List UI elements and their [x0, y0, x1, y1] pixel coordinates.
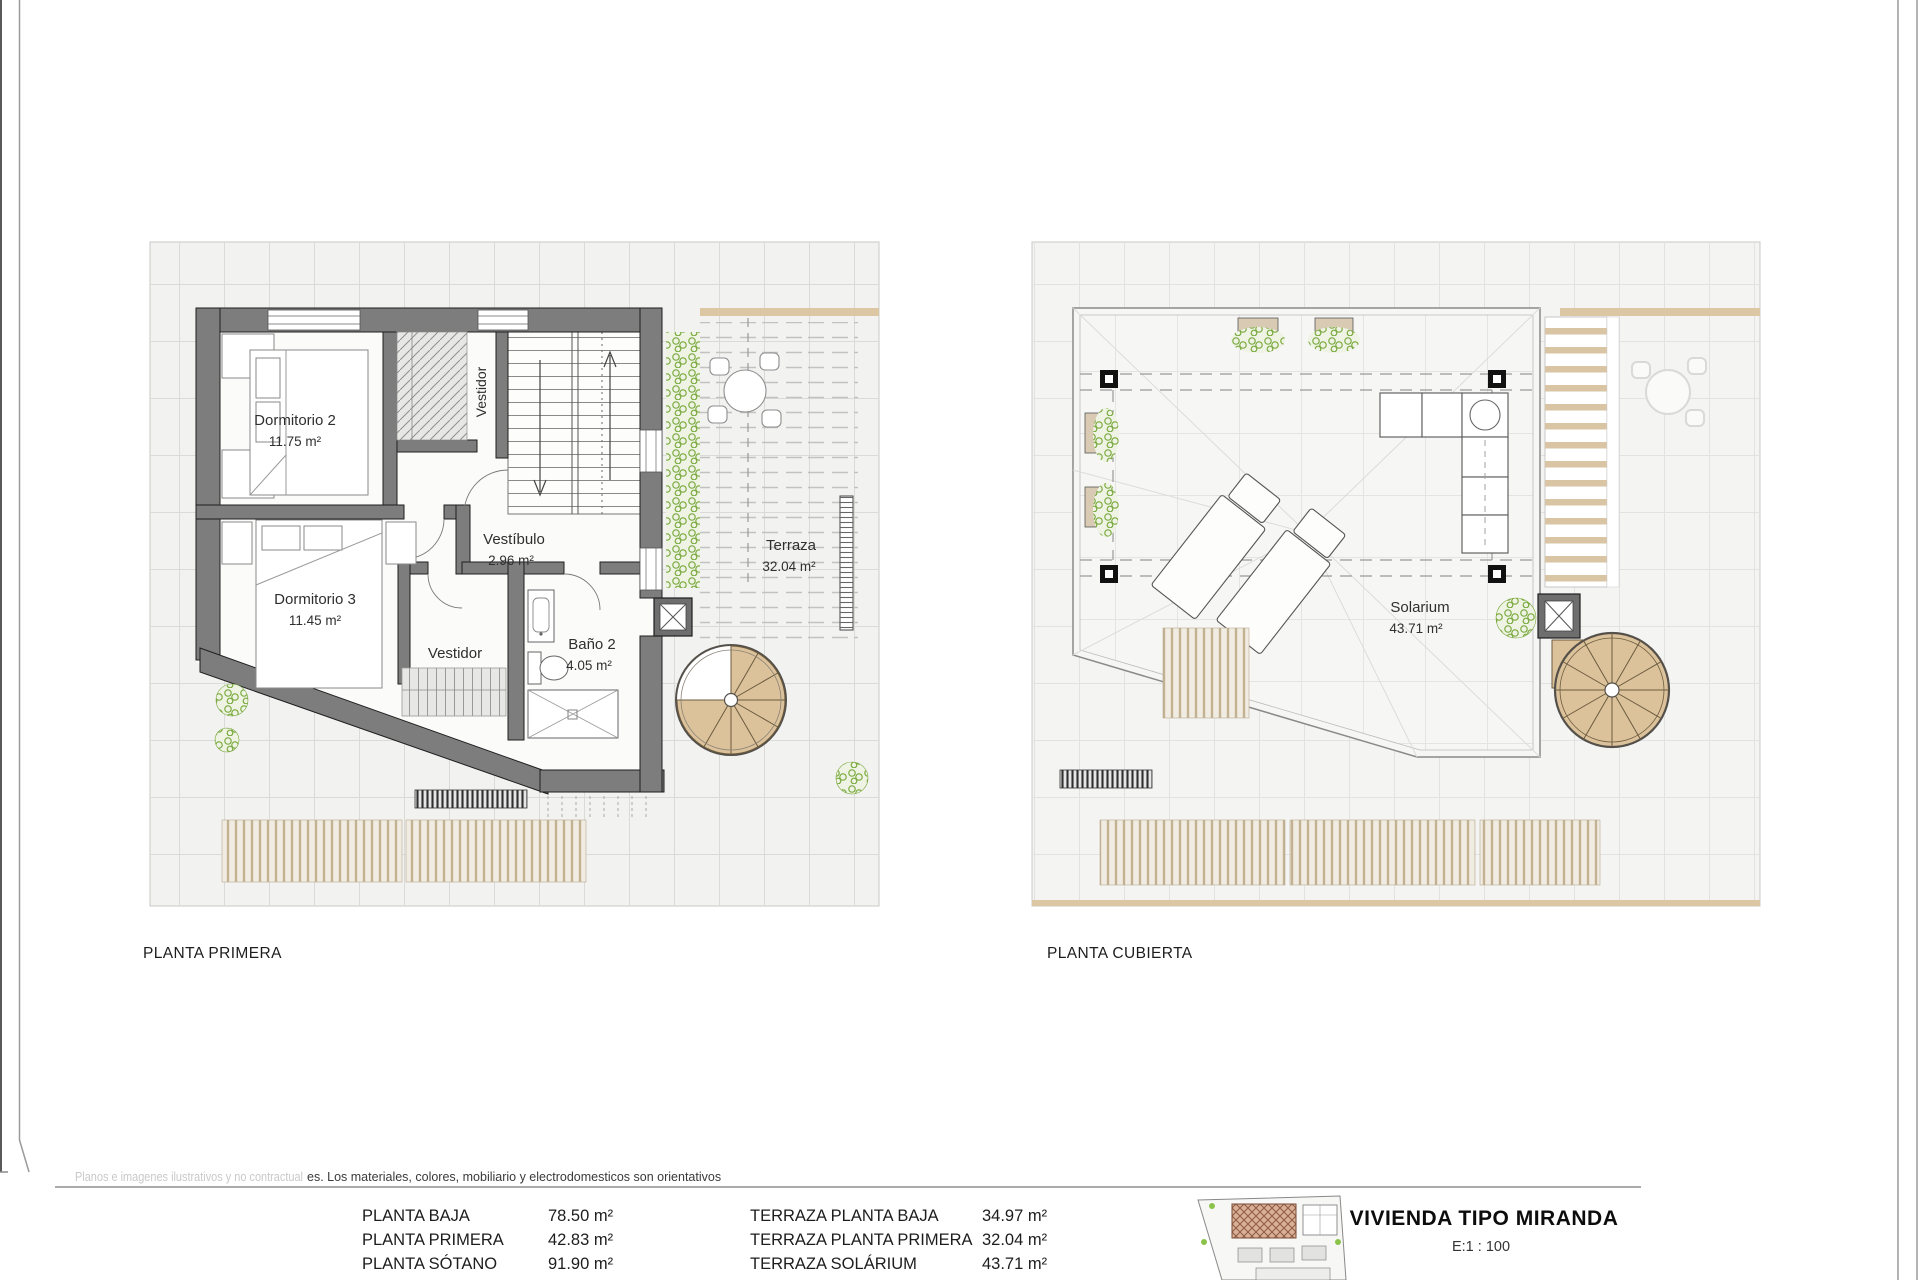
table-row-value: 42.83 m² — [548, 1231, 614, 1249]
plan2-title: PLANTA CUBIERTA — [1047, 945, 1193, 962]
staircase-icon — [508, 332, 640, 514]
plan2-top-wood-band — [1560, 308, 1760, 316]
room-area-terraza: 32.04 m² — [762, 559, 816, 574]
room-area-dormitorio-3: 11.45 m² — [289, 613, 342, 628]
room-area-bano-2: 4.05 m² — [566, 658, 612, 673]
room-area-dormitorio-2: 11.75 m² — [269, 434, 322, 449]
areas-table: PLANTA BAJA 78.50 m² PLANTA PRIMERA 42.8… — [362, 1207, 1048, 1273]
room-label-vestidor-top: Vestidor — [473, 366, 489, 417]
pergola-slats — [1545, 317, 1619, 587]
vent-grill-2-icon — [1060, 770, 1152, 788]
louver-strip-icon — [840, 496, 853, 630]
disclaimer-faded: Planos e imagenes ilustrativos y no cont… — [75, 1170, 303, 1184]
table-row-label: TERRAZA SOLÁRIUM — [750, 1254, 917, 1273]
plant-icon — [1496, 598, 1536, 638]
deck-boards-2-mid — [1290, 820, 1475, 885]
room-label-solarium: Solarium — [1390, 599, 1449, 616]
plan2-bottom-wood-band — [1032, 900, 1760, 906]
plan-sheet: Dormitorio 2 11.75 m² Dormitorio 3 11.45… — [0, 0, 1920, 1280]
plan-primera-drawing: Dormitorio 2 11.75 m² Dormitorio 3 11.45… — [150, 242, 879, 906]
plan1-title: PLANTA PRIMERA — [143, 945, 282, 962]
bottom-strip: Planos e imagenes ilustrativos y no cont… — [55, 1170, 1641, 1280]
project-title: VIVIENDA TIPO MIRANDA — [1350, 1207, 1619, 1230]
table-row-label: TERRAZA PLANTA BAJA — [750, 1207, 939, 1225]
table-row-label: PLANTA PRIMERA — [362, 1231, 504, 1249]
table-row-value: 43.71 m² — [982, 1255, 1048, 1273]
table-row-value: 78.50 m² — [548, 1207, 614, 1225]
table-row-label: PLANTA BAJA — [362, 1207, 470, 1225]
table-row-value: 91.90 m² — [548, 1255, 614, 1273]
room-label-vestibulo: Vestíbulo — [483, 531, 545, 548]
hedge-plants — [666, 332, 700, 588]
table-row-value: 34.97 m² — [982, 1207, 1048, 1225]
deck-boards-2-right — [1480, 820, 1600, 885]
room-label-vestidor-bottom: Vestidor — [428, 645, 482, 662]
plan1-top-wood-band — [700, 308, 879, 316]
disclaimer-text: es. Los materiales, colores, mobiliario … — [307, 1170, 721, 1184]
shower-icon — [528, 690, 618, 738]
plan-cubierta-drawing: Solarium 43.71 m² — [1032, 242, 1760, 906]
deck-boards-2-left — [1100, 820, 1285, 885]
room-label-dormitorio-2: Dormitorio 2 — [254, 412, 336, 429]
room-label-bano-2: Baño 2 — [568, 636, 616, 653]
closet-top-icon — [397, 332, 467, 440]
elevator-2-icon — [1538, 594, 1580, 638]
closet-bottom-icon — [402, 668, 506, 716]
highlighted-villa — [1232, 1204, 1296, 1238]
table-row-label: TERRAZA PLANTA PRIMERA — [750, 1231, 973, 1249]
room-area-solarium: 43.71 m² — [1389, 621, 1443, 636]
room-label-terraza: Terraza — [766, 537, 817, 554]
deck-boards-right — [406, 820, 586, 882]
deck-boards-left — [222, 820, 402, 882]
table-row-value: 32.04 m² — [982, 1231, 1048, 1249]
room-label-dormitorio-3: Dormitorio 3 — [274, 591, 356, 608]
floorplan-drawing: Dormitorio 2 11.75 m² Dormitorio 3 11.45… — [0, 0, 1920, 1280]
spiral-stair-icon — [676, 645, 786, 755]
deck-patch — [1163, 628, 1249, 718]
sink-icon — [528, 590, 554, 642]
table-row-label: PLANTA SÓTANO — [362, 1254, 497, 1273]
site-plan-thumbnail — [1198, 1196, 1346, 1280]
vent-grill-icon — [415, 790, 527, 808]
scale-label: E:1 : 100 — [1452, 1239, 1510, 1255]
elevator-icon — [654, 598, 692, 636]
room-area-vestibulo: 2.96 m² — [488, 553, 534, 568]
